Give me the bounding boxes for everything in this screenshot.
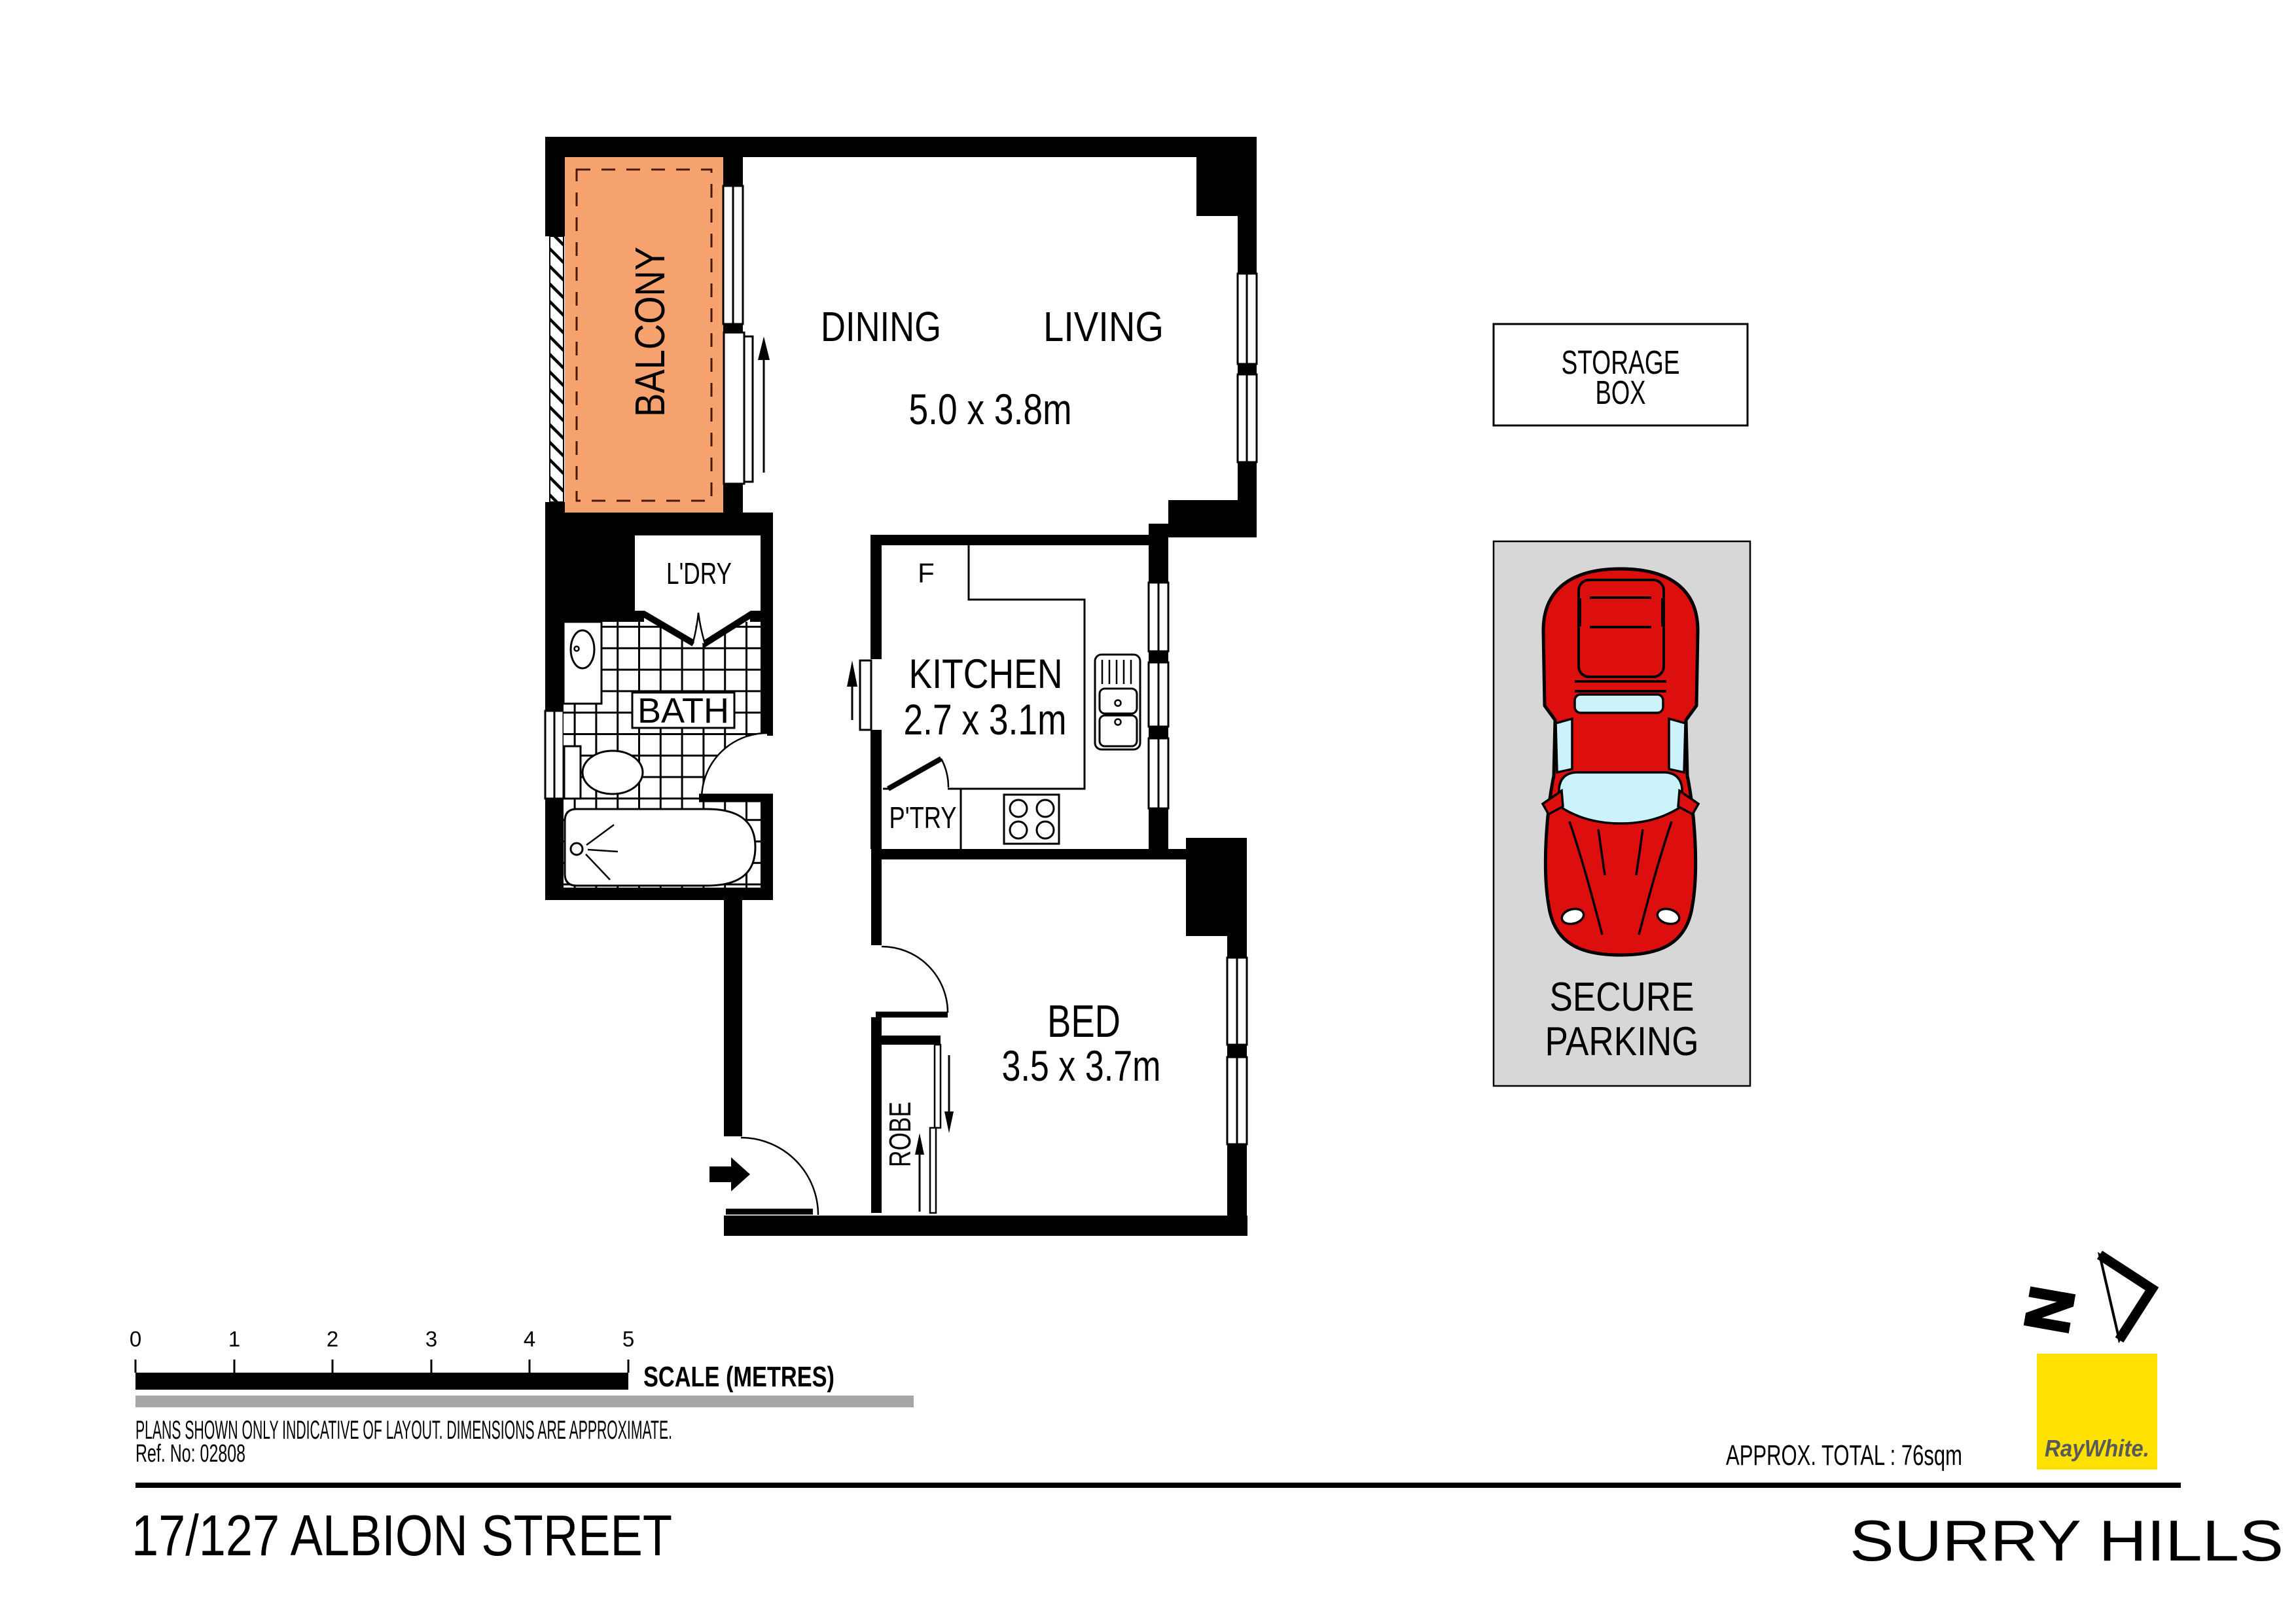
svg-text:1: 1 — [228, 1327, 240, 1351]
svg-text:F: F — [918, 558, 935, 588]
svg-text:BALCONY: BALCONY — [626, 247, 673, 417]
svg-text:4: 4 — [524, 1327, 535, 1351]
svg-text:PARKING: PARKING — [1545, 1019, 1699, 1064]
svg-text:SECURE: SECURE — [1550, 975, 1695, 1020]
svg-text:DINING: DINING — [821, 303, 941, 350]
svg-text:5: 5 — [622, 1327, 634, 1351]
svg-text:BED: BED — [1047, 996, 1121, 1047]
svg-text:3.5 x 3.7m: 3.5 x 3.7m — [1002, 1041, 1161, 1090]
svg-text:ROBE: ROBE — [883, 1102, 917, 1167]
svg-text:LIVING: LIVING — [1043, 303, 1164, 350]
svg-text:RayWhite.: RayWhite. — [2045, 1435, 2149, 1462]
svg-text:5.0 x 3.8m: 5.0 x 3.8m — [909, 385, 1072, 433]
svg-text:APPROX. TOTAL : 76sqm: APPROX. TOTAL : 76sqm — [1726, 1439, 1962, 1471]
svg-text:2: 2 — [327, 1327, 338, 1351]
svg-text:2.7 x 3.1m: 2.7 x 3.1m — [904, 695, 1067, 744]
svg-text:KITCHEN: KITCHEN — [909, 651, 1063, 697]
svg-text:17/127 ALBION STREET: 17/127 ALBION STREET — [132, 1503, 672, 1568]
svg-text:P'TRY: P'TRY — [889, 801, 957, 835]
svg-text:L'DRY: L'DRY — [666, 556, 732, 590]
svg-text:3: 3 — [425, 1327, 437, 1351]
svg-text:BATH: BATH — [637, 691, 729, 731]
svg-text:Ref. No: 02808: Ref. No: 02808 — [135, 1440, 245, 1468]
svg-text:BOX: BOX — [1596, 374, 1646, 411]
svg-text:0: 0 — [130, 1327, 141, 1351]
svg-text:SCALE (METRES): SCALE (METRES) — [643, 1361, 834, 1393]
svg-text:SURRY HILLS: SURRY HILLS — [1850, 1508, 2284, 1573]
